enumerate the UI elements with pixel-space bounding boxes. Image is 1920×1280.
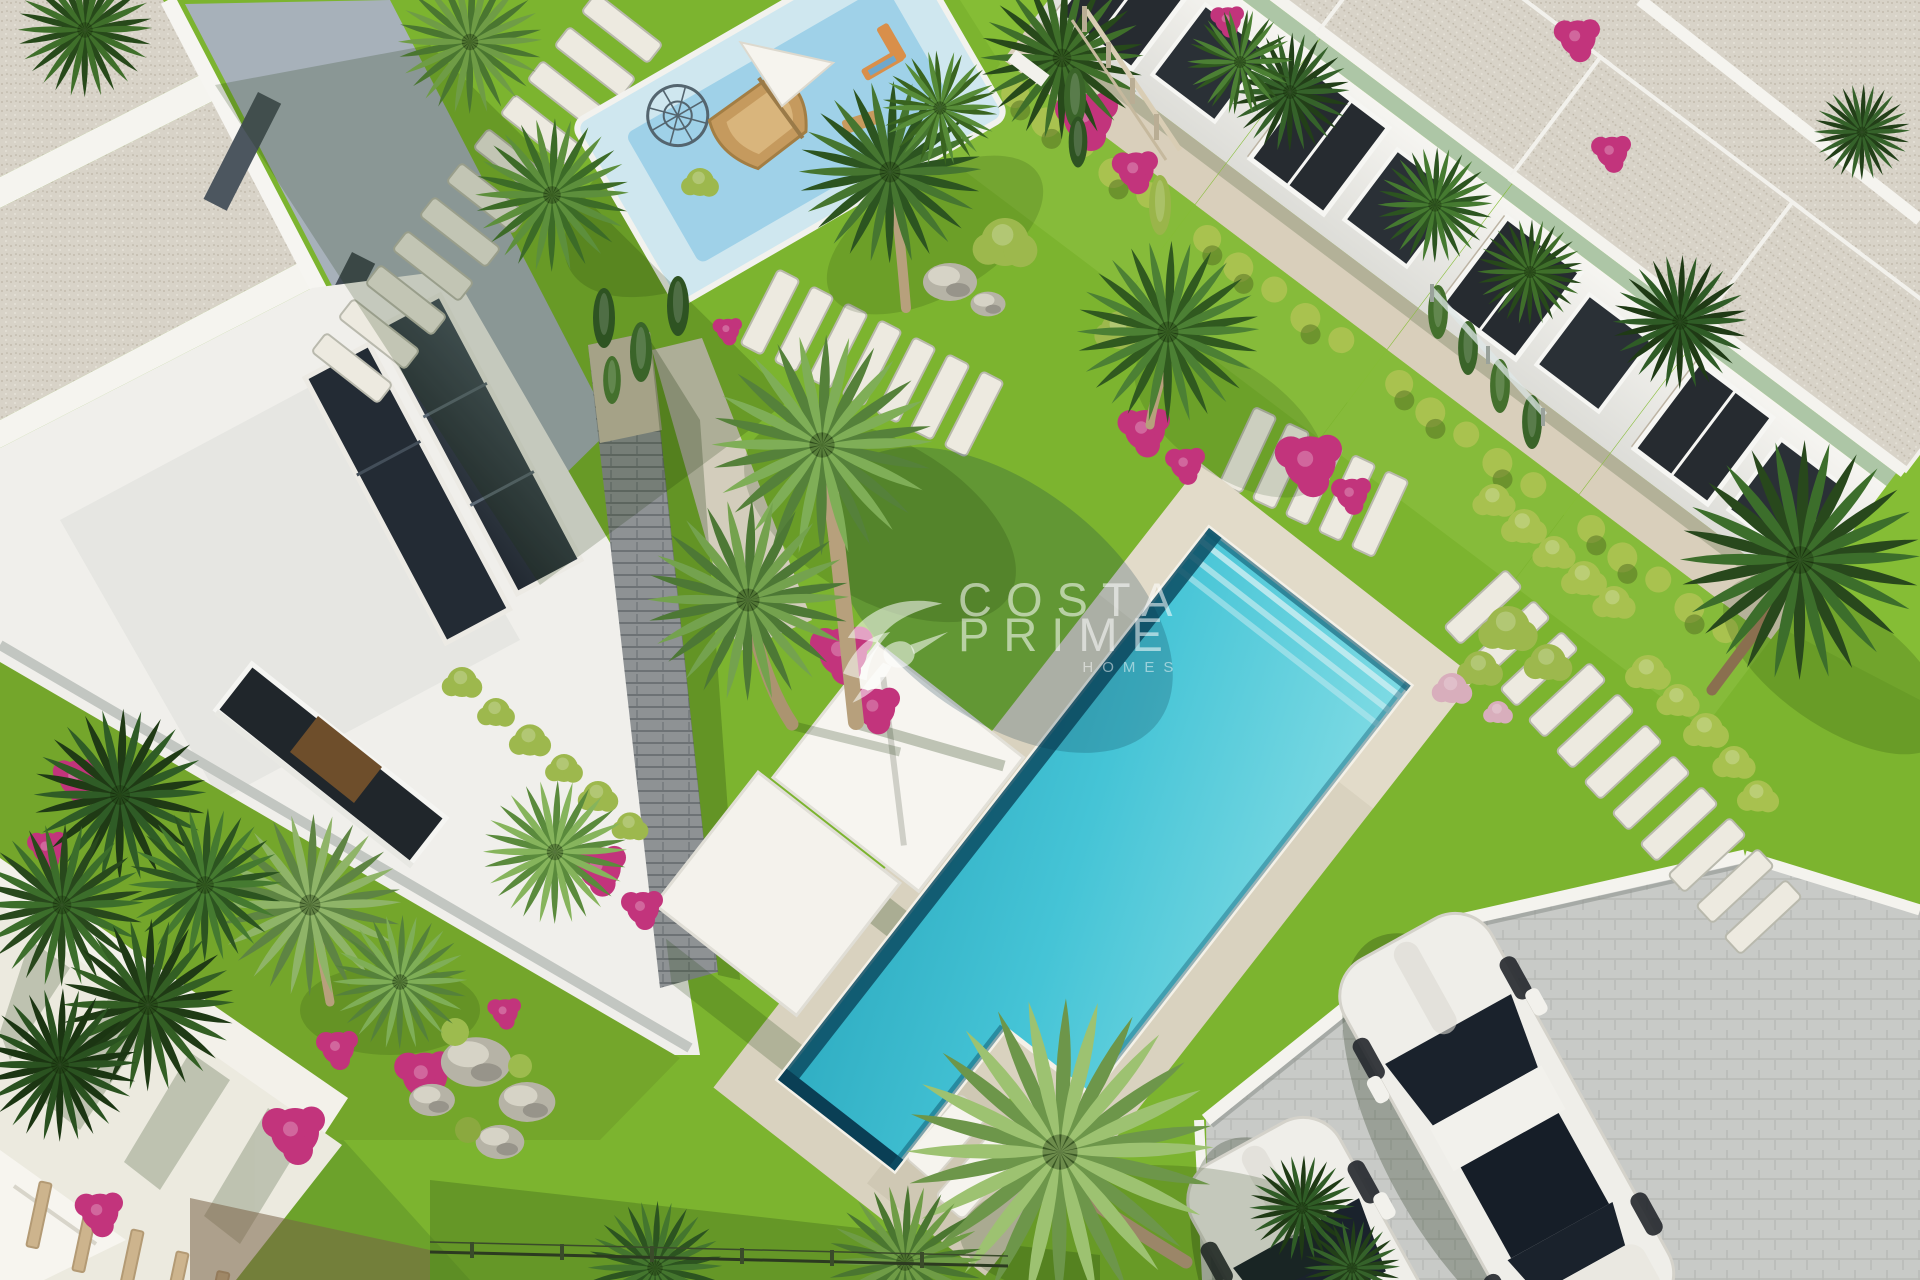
render-viewport: COSTA PRIME HOMES	[0, 0, 1920, 1280]
aerial-render	[0, 0, 1920, 1280]
